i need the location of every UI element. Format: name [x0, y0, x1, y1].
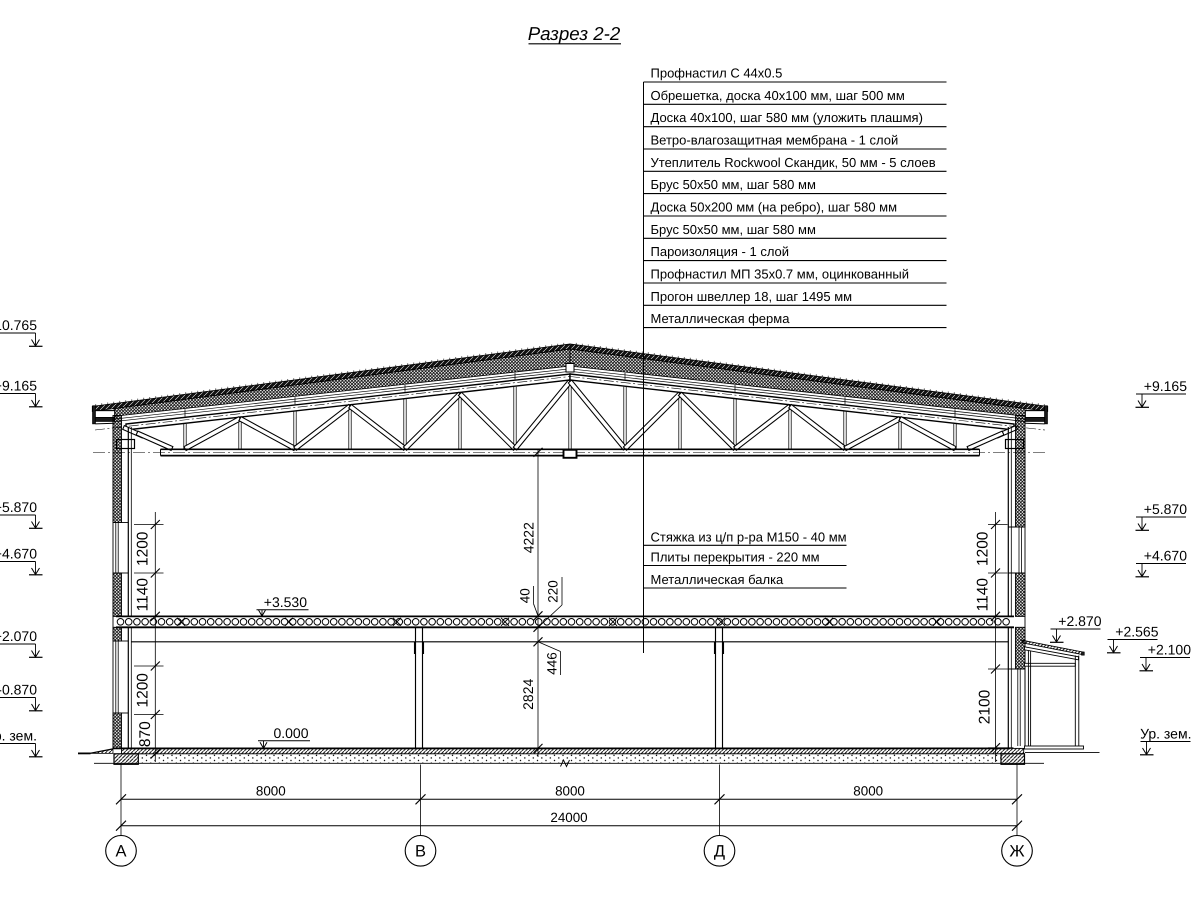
- svg-text:+2.070: +2.070: [0, 628, 37, 644]
- svg-text:+2.565: +2.565: [1115, 624, 1158, 640]
- svg-text:1200: 1200: [135, 673, 152, 708]
- svg-text:Плиты перекрытия - 220 мм: Плиты перекрытия - 220 мм: [651, 550, 820, 565]
- svg-text:Брус 50х50 мм, шаг 580 мм: Брус 50х50 мм, шаг 580 мм: [651, 177, 816, 192]
- svg-text:Стяжка из ц/п р-ра М150 - 40 м: Стяжка из ц/п р-ра М150 - 40 мм: [651, 529, 847, 544]
- svg-text:+5.870: +5.870: [1144, 501, 1187, 517]
- svg-text:Прогон швеллер 18, шаг 1495 мм: Прогон швеллер 18, шаг 1495 мм: [651, 289, 853, 304]
- svg-text:1200: 1200: [135, 531, 152, 566]
- svg-text:А: А: [115, 843, 126, 861]
- svg-text:2100: 2100: [977, 689, 994, 724]
- svg-text:Обрешетка, доска 40х100 мм, ша: Обрешетка, доска 40х100 мм, шаг 500 мм: [651, 88, 905, 103]
- svg-text:Пароизоляция - 1 слой: Пароизоляция - 1 слой: [651, 244, 790, 259]
- svg-text:+2.870: +2.870: [1058, 613, 1101, 629]
- svg-text:Ветро-влагозащитная мембрана -: Ветро-влагозащитная мембрана - 1 слой: [651, 133, 899, 148]
- svg-text:446: 446: [545, 652, 560, 675]
- svg-text:870: 870: [137, 721, 154, 747]
- svg-text:1200: 1200: [975, 531, 992, 566]
- svg-text:40: 40: [518, 588, 533, 603]
- svg-text:Металлическая балка: Металлическая балка: [651, 572, 785, 587]
- svg-text:+10.765: +10.765: [0, 317, 37, 333]
- svg-text:8000: 8000: [256, 783, 286, 798]
- svg-text:+4.670: +4.670: [1144, 548, 1187, 564]
- svg-text:Доска 40х100, шаг 580 мм (улож: Доска 40х100, шаг 580 мм (уложить плашмя…: [651, 110, 923, 125]
- svg-text:Ур. зем.: Ур. зем.: [0, 728, 37, 744]
- svg-text:2824: 2824: [520, 679, 536, 710]
- svg-text:Д: Д: [714, 843, 725, 861]
- svg-text:+9.165: +9.165: [1144, 378, 1187, 394]
- svg-text:1140: 1140: [135, 578, 152, 612]
- svg-text:+9.165: +9.165: [0, 378, 37, 394]
- svg-text:220: 220: [546, 580, 561, 603]
- svg-text:Профнастил МП 35х0.7 мм, оцинк: Профнастил МП 35х0.7 мм, оцинкованный: [651, 267, 909, 282]
- svg-text:Доска 50х200 мм (на ребро), ша: Доска 50х200 мм (на ребро), шаг 580 мм: [651, 200, 898, 215]
- svg-text:+4.670: +4.670: [0, 546, 37, 562]
- svg-text:Утеплитель Rockwool Скандик, 5: Утеплитель Rockwool Скандик, 50 мм - 5 с…: [651, 155, 936, 170]
- svg-text:Ж: Ж: [1009, 843, 1025, 861]
- svg-text:1140: 1140: [975, 578, 992, 612]
- svg-text:8000: 8000: [853, 783, 883, 798]
- svg-text:Металлическая ферма: Металлическая ферма: [651, 311, 791, 326]
- svg-text:+3.530: +3.530: [264, 594, 307, 610]
- svg-text:+2.100: +2.100: [1148, 642, 1191, 658]
- svg-text:8000: 8000: [555, 783, 585, 798]
- svg-text:24000: 24000: [550, 810, 587, 825]
- svg-text:Профнастил С 44х0.5: Профнастил С 44х0.5: [651, 66, 783, 81]
- svg-text:0.000: 0.000: [273, 725, 308, 741]
- svg-text:Ур. зем.: Ур. зем.: [1140, 726, 1191, 742]
- svg-text:В: В: [415, 843, 426, 861]
- svg-text:Разрез 2-2: Разрез 2-2: [528, 23, 621, 44]
- svg-text:-0.870: -0.870: [0, 682, 37, 698]
- svg-text:+5.870: +5.870: [0, 499, 37, 515]
- svg-text:Брус 50х50 мм, шаг 580 мм: Брус 50х50 мм, шаг 580 мм: [651, 222, 816, 237]
- svg-text:4222: 4222: [521, 522, 537, 553]
